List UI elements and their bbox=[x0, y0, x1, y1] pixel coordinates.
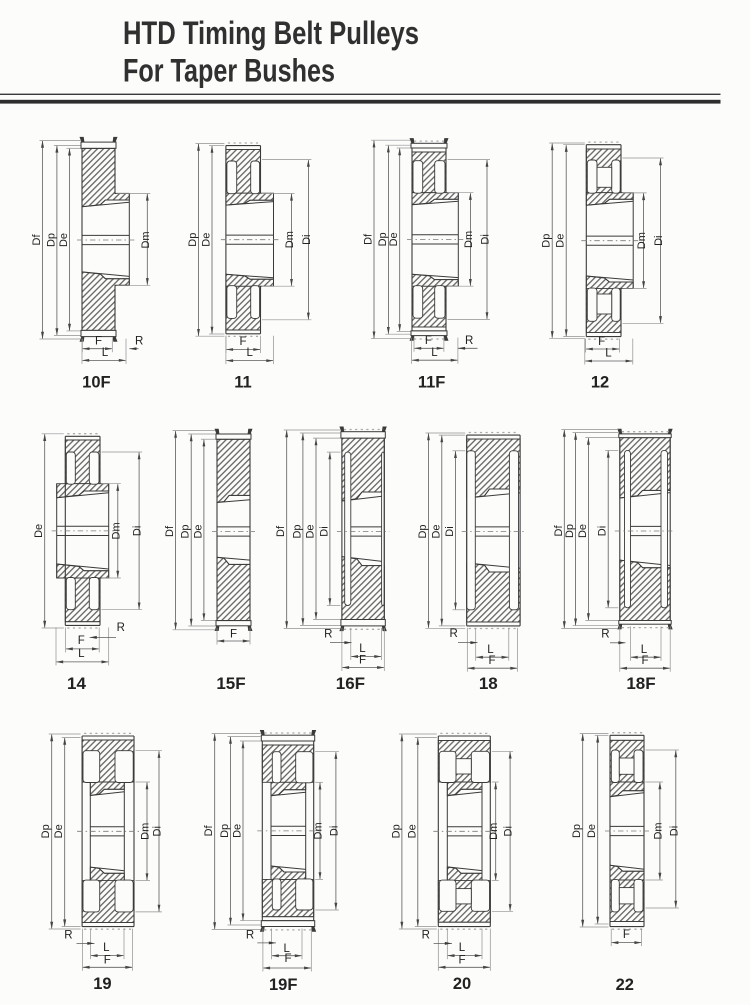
svg-text:F: F bbox=[284, 953, 291, 965]
svg-text:L: L bbox=[605, 348, 612, 360]
svg-text:Dm: Dm bbox=[110, 522, 122, 539]
svg-text:R: R bbox=[246, 930, 254, 942]
svg-text:11: 11 bbox=[234, 374, 251, 392]
svg-text:De: De bbox=[58, 233, 70, 247]
svg-text:De: De bbox=[406, 824, 418, 838]
svg-text:Dp: Dp bbox=[291, 524, 303, 538]
svg-text:19F: 19F bbox=[269, 976, 297, 994]
svg-text:De: De bbox=[192, 524, 204, 538]
svg-text:L: L bbox=[246, 347, 253, 359]
svg-text:Df: Df bbox=[203, 824, 215, 836]
svg-text:Dp: Dp bbox=[417, 524, 429, 538]
svg-text:10F: 10F bbox=[82, 374, 110, 392]
svg-text:Dm: Dm bbox=[140, 231, 152, 248]
svg-text:Di: Di bbox=[480, 234, 492, 244]
svg-text:L: L bbox=[103, 942, 110, 954]
svg-text:Dm: Dm bbox=[636, 232, 648, 249]
svg-text:Di: Di bbox=[152, 826, 164, 836]
svg-text:De: De bbox=[555, 234, 567, 248]
svg-text:Dp: Dp bbox=[180, 524, 192, 538]
svg-text:F: F bbox=[359, 654, 366, 666]
svg-text:12: 12 bbox=[591, 374, 609, 392]
svg-text:De: De bbox=[430, 524, 442, 538]
svg-text:Df: Df bbox=[553, 525, 565, 537]
svg-text:F: F bbox=[78, 635, 85, 647]
svg-text:Di: Di bbox=[132, 526, 144, 536]
svg-text:F: F bbox=[488, 655, 495, 667]
svg-text:Dm: Dm bbox=[652, 822, 664, 839]
svg-text:Di: Di bbox=[301, 235, 313, 245]
svg-text:Dm: Dm bbox=[140, 823, 152, 840]
svg-text:R: R bbox=[465, 335, 473, 347]
svg-text:R: R bbox=[324, 629, 332, 641]
svg-text:R: R bbox=[449, 628, 457, 640]
svg-text:Df: Df bbox=[275, 525, 287, 537]
svg-text:Dp: Dp bbox=[219, 824, 231, 838]
svg-text:Di: Di bbox=[328, 826, 340, 836]
svg-text:Dp: Dp bbox=[541, 234, 553, 248]
svg-text:R: R bbox=[64, 929, 72, 941]
svg-text:L: L bbox=[487, 644, 494, 656]
svg-text:F: F bbox=[623, 929, 630, 941]
svg-text:Dm: Dm bbox=[313, 822, 325, 839]
svg-text:Dp: Dp bbox=[571, 824, 583, 838]
svg-text:Df: Df bbox=[31, 234, 43, 246]
svg-text:L: L bbox=[78, 648, 85, 660]
svg-text:F: F bbox=[458, 954, 465, 966]
svg-text:F: F bbox=[95, 335, 102, 347]
svg-text:De: De bbox=[53, 824, 65, 838]
svg-text:18F: 18F bbox=[626, 674, 655, 693]
svg-text:Di: Di bbox=[597, 526, 609, 536]
svg-text:De: De bbox=[586, 824, 598, 838]
svg-text:De: De bbox=[577, 524, 589, 538]
svg-text:14: 14 bbox=[67, 674, 86, 693]
svg-text:Di: Di bbox=[653, 236, 665, 246]
svg-text:Dm: Dm bbox=[488, 823, 500, 840]
svg-text:F: F bbox=[598, 336, 605, 348]
svg-text:De: De bbox=[201, 233, 213, 247]
svg-text:Di: Di bbox=[444, 526, 456, 536]
svg-text:De: De bbox=[305, 524, 317, 538]
svg-text:L: L bbox=[102, 347, 109, 359]
svg-text:Dp: Dp bbox=[187, 233, 199, 247]
svg-text:L: L bbox=[431, 347, 438, 359]
svg-text:R: R bbox=[135, 335, 143, 347]
svg-text:Dp: Dp bbox=[564, 524, 576, 538]
svg-text:R: R bbox=[422, 929, 430, 941]
svg-text:20: 20 bbox=[453, 975, 471, 993]
svg-text:F: F bbox=[230, 628, 237, 640]
svg-text:15F: 15F bbox=[216, 674, 245, 693]
svg-text:HTD Timing Belt Pulleys: HTD Timing Belt Pulleys bbox=[123, 15, 419, 51]
svg-text:L: L bbox=[641, 644, 648, 656]
svg-text:Dm: Dm bbox=[284, 231, 296, 248]
svg-text:16F: 16F bbox=[336, 674, 365, 693]
svg-text:Dp: Dp bbox=[45, 233, 57, 247]
svg-text:Di: Di bbox=[503, 826, 515, 836]
svg-text:For Taper Bushes: For Taper Bushes bbox=[123, 52, 335, 88]
svg-text:Dp: Dp bbox=[40, 824, 52, 838]
svg-text:Dp: Dp bbox=[390, 824, 402, 838]
svg-text:Dp: Dp bbox=[377, 232, 389, 246]
svg-text:Di: Di bbox=[668, 826, 680, 836]
svg-text:L: L bbox=[459, 942, 466, 954]
svg-text:Df: Df bbox=[164, 525, 176, 537]
svg-text:F: F bbox=[425, 335, 432, 347]
svg-text:De: De bbox=[388, 232, 400, 246]
svg-text:11F: 11F bbox=[418, 374, 446, 392]
svg-text:Dm: Dm bbox=[463, 231, 475, 248]
svg-text:F: F bbox=[641, 655, 648, 667]
svg-text:R: R bbox=[601, 629, 609, 641]
svg-text:F: F bbox=[239, 336, 246, 348]
svg-text:19: 19 bbox=[93, 975, 111, 993]
svg-text:Di: Di bbox=[318, 526, 330, 536]
svg-text:De: De bbox=[33, 524, 45, 538]
svg-text:F: F bbox=[104, 954, 111, 966]
svg-text:R: R bbox=[117, 622, 125, 634]
svg-text:Df: Df bbox=[363, 233, 375, 245]
svg-text:18: 18 bbox=[479, 674, 498, 693]
svg-text:22: 22 bbox=[616, 976, 634, 994]
svg-text:De: De bbox=[232, 824, 244, 838]
